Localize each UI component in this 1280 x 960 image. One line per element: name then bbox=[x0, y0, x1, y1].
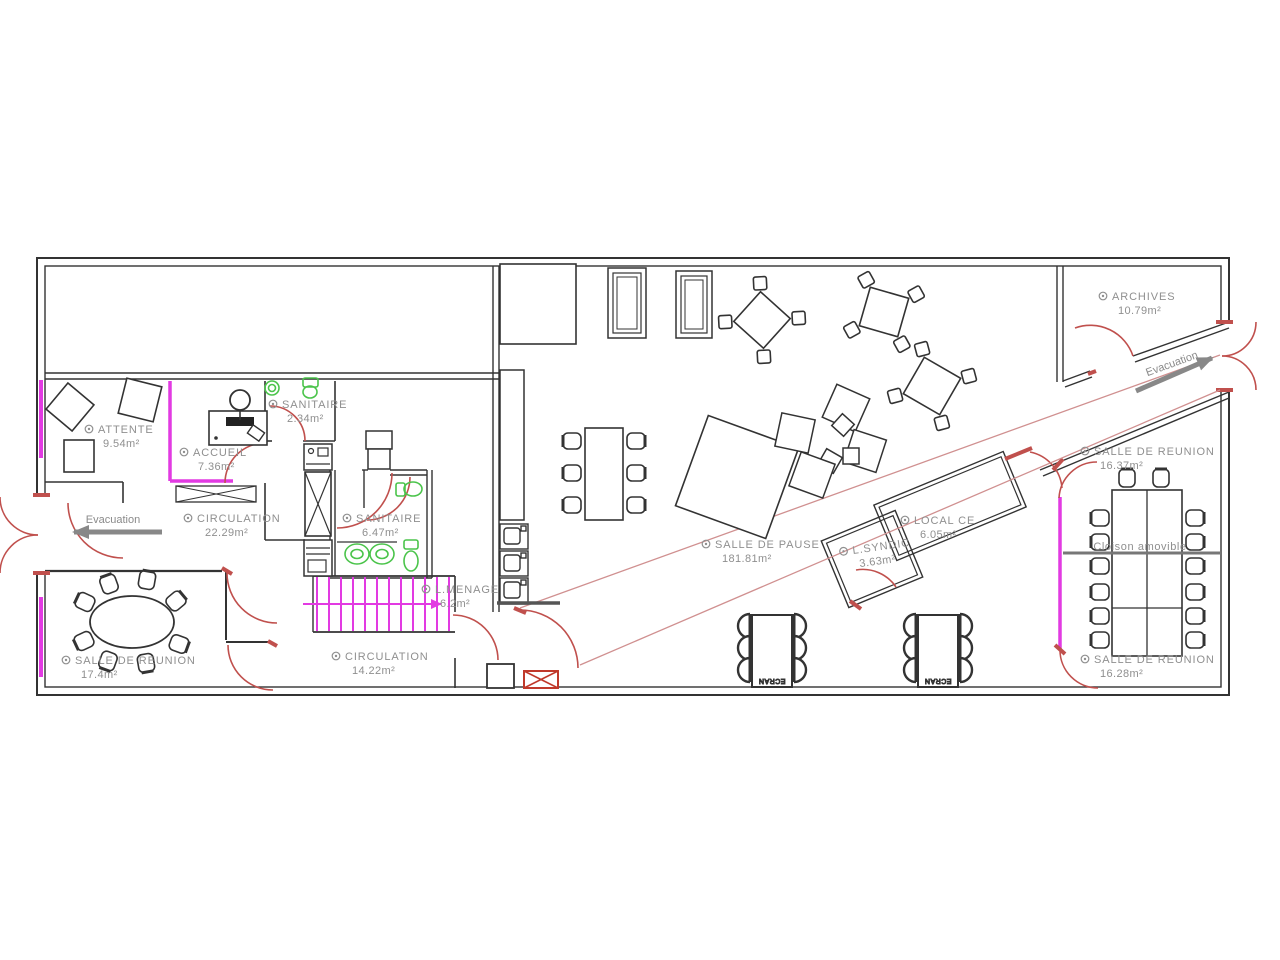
waiting-table bbox=[64, 440, 94, 472]
room-label-accueil: ACCUEIL 7.36m² bbox=[180, 447, 247, 473]
room-marker-icon bbox=[839, 547, 848, 556]
meeting1628-door-arc bbox=[1060, 650, 1098, 688]
screen-table: ECRAN bbox=[904, 614, 972, 687]
svg-text:ARCHIVES: ARCHIVES bbox=[1112, 291, 1175, 303]
toilet-icon bbox=[404, 540, 418, 571]
svg-text:CIRCULATION: CIRCULATION bbox=[345, 651, 429, 663]
room-label-reunion-1637: SALLE DE REUNION 16.37m² bbox=[1081, 446, 1215, 472]
crossed-cabinet bbox=[176, 486, 256, 502]
svg-text:3.63m²: 3.63m² bbox=[859, 553, 897, 570]
svg-text:SALLE DE PAUSE: SALLE DE PAUSE bbox=[715, 539, 820, 551]
sink-icon bbox=[345, 544, 369, 564]
svg-text:ATTENTE: ATTENTE bbox=[98, 424, 154, 436]
fire-safety-box bbox=[524, 671, 558, 688]
room-marker-icon bbox=[1081, 655, 1089, 663]
svg-text:2.34m²: 2.34m² bbox=[287, 413, 324, 425]
copier bbox=[304, 444, 332, 470]
room-marker-icon bbox=[1099, 292, 1107, 300]
svg-text:10.79m²: 10.79m² bbox=[1118, 305, 1161, 317]
svg-text:6.47m²: 6.47m² bbox=[362, 527, 399, 539]
room-label-reunion-17: SALLE DE REUNION 17.4m² bbox=[62, 655, 196, 681]
svg-text:SANITAIRE: SANITAIRE bbox=[356, 513, 421, 525]
room-marker-icon bbox=[180, 448, 188, 456]
sink-icon bbox=[265, 381, 279, 395]
counter bbox=[500, 370, 524, 520]
svg-text:SALLE DE REUNION: SALLE DE REUNION bbox=[1094, 446, 1215, 458]
toilet-icon bbox=[303, 378, 318, 398]
room-label-pause: SALLE DE PAUSE 181.81m² bbox=[702, 539, 820, 565]
furniture-layer: ECRAN ECRAN bbox=[46, 264, 1204, 687]
elevator-shaft bbox=[305, 472, 331, 536]
screen-label: ECRAN bbox=[924, 677, 951, 684]
svg-text:LOCAL CE: LOCAL CE bbox=[914, 515, 975, 527]
duct-box bbox=[368, 449, 390, 469]
archives-exit-door-arc bbox=[1075, 325, 1133, 356]
menage-door-arc bbox=[453, 615, 498, 660]
room-label-circulation-2: CIRCULATION 14.22m² bbox=[332, 651, 428, 677]
cafe-table bbox=[712, 270, 811, 369]
room-label-menage: L.MENAGE 6.2m² bbox=[422, 584, 499, 610]
svg-text:L.MENAGE: L.MENAGE bbox=[435, 584, 499, 596]
svg-text:181.81m²: 181.81m² bbox=[722, 553, 772, 565]
svg-text:16.28m²: 16.28m² bbox=[1100, 668, 1143, 680]
svg-text:SALLE DE REUNION: SALLE DE REUNION bbox=[1094, 654, 1215, 666]
cafe-table bbox=[840, 268, 927, 355]
corridor-door-arc bbox=[520, 610, 578, 668]
svg-text:9.54m²: 9.54m² bbox=[103, 438, 140, 450]
room-label-reunion-1628: SALLE DE REUNION 16.28m² bbox=[1081, 654, 1215, 680]
room-label-circulation-1: CIRCULATION 22.29m² bbox=[184, 513, 280, 539]
room-marker-icon bbox=[901, 516, 909, 524]
room-marker-icon bbox=[332, 652, 340, 660]
cabinet-nested bbox=[676, 271, 712, 338]
reception-desk bbox=[209, 390, 267, 445]
svg-text:14.22m²: 14.22m² bbox=[352, 665, 395, 677]
room-marker-icon bbox=[62, 656, 70, 664]
screen-label: ECRAN bbox=[758, 677, 785, 684]
room-marker-icon bbox=[184, 514, 192, 522]
cafe-table bbox=[883, 337, 982, 436]
svg-text:SALLE DE REUNION: SALLE DE REUNION bbox=[75, 655, 196, 667]
room-label-syndic: L.SYNDIC 3.63m² bbox=[839, 537, 913, 573]
room-marker-icon bbox=[343, 514, 351, 522]
syndic-door-arc bbox=[856, 569, 896, 587]
svg-text:7.36m²: 7.36m² bbox=[198, 461, 235, 473]
floor-plan-drawing: Evacuation Evacuation bbox=[0, 0, 1280, 960]
room-marker-icon bbox=[85, 425, 93, 433]
waiting-seat bbox=[46, 383, 94, 431]
evacuation-label-left: Evacuation bbox=[86, 514, 140, 526]
desk-chair bbox=[230, 390, 250, 410]
svg-text:17.4m²: 17.4m² bbox=[81, 669, 118, 681]
svg-text:ACCUEIL: ACCUEIL bbox=[193, 447, 247, 459]
boardroom-table bbox=[1091, 469, 1204, 656]
appliance-row bbox=[500, 524, 528, 604]
svg-text:22.29m²: 22.29m² bbox=[205, 527, 248, 539]
screen-table: ECRAN bbox=[738, 614, 806, 687]
floor-plan-page: Evacuation Evacuation bbox=[0, 0, 1280, 960]
svg-text:SANITAIRE: SANITAIRE bbox=[282, 399, 347, 411]
meeting17-top-door-arc bbox=[227, 573, 277, 623]
duct-box bbox=[366, 431, 392, 449]
svg-text:6.2m²: 6.2m² bbox=[440, 598, 470, 610]
room-label-attente: ATTENTE 9.54m² bbox=[85, 424, 153, 450]
room-label-archives: ARCHIVES 10.79m² bbox=[1099, 291, 1175, 317]
svg-text:16.37m²: 16.37m² bbox=[1100, 460, 1143, 472]
partition-label: Cloison amovible bbox=[1093, 541, 1186, 553]
lunch-table bbox=[563, 428, 645, 520]
svg-text:CIRCULATION: CIRCULATION bbox=[197, 513, 281, 525]
waiting-seat bbox=[118, 378, 162, 422]
sink-icon bbox=[370, 544, 394, 564]
appliance bbox=[304, 540, 332, 576]
kitchen-block bbox=[500, 264, 576, 344]
svg-text:6.05m²: 6.05m² bbox=[920, 529, 957, 541]
cabinet-nested bbox=[608, 268, 646, 338]
meeting17-bottom-door-arc bbox=[228, 645, 273, 690]
